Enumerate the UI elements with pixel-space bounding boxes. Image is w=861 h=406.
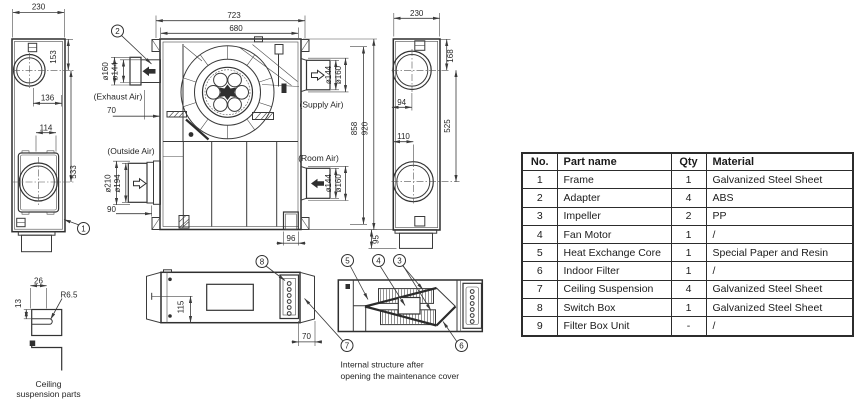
dim-text: 70 — [107, 106, 116, 115]
callout-7: 7 — [305, 299, 354, 352]
dia-text: ø160 — [334, 65, 343, 84]
cell-qty: 4 — [671, 189, 706, 207]
dim-168: 168 — [441, 39, 456, 70]
dim-70-front: 70 — [292, 321, 323, 346]
switch-box-front — [280, 275, 299, 319]
cell-qty: 1 — [671, 171, 706, 189]
dim-95: 95 — [369, 230, 397, 249]
callout-5: 5 — [342, 255, 369, 300]
dim-153: 153 — [49, 39, 73, 70]
cell-part-name: Frame — [557, 171, 671, 189]
hook-caption-line2: suspension parts — [16, 389, 80, 399]
dim-text: 680 — [229, 24, 243, 33]
hook-caption-line1: Ceiling — [36, 379, 62, 389]
indoor-filter-edge — [437, 307, 456, 326]
dim-text: 110 — [397, 132, 410, 141]
dia-text: ø194 — [113, 174, 122, 193]
cell-qty: - — [671, 317, 706, 336]
switch-box-internal — [463, 283, 482, 328]
dim-r6-5: R6.5 — [51, 291, 78, 320]
dia-text: ø210 — [103, 174, 112, 193]
dim-26: 26 — [30, 277, 46, 309]
cell-material: Special Paper and Resin — [706, 244, 853, 262]
screw — [168, 314, 172, 318]
hook-slot — [32, 319, 53, 325]
dim-90-outside: 90 — [107, 205, 152, 217]
dim-136: 136 — [33, 88, 61, 107]
dim-text: 153 — [49, 50, 58, 64]
dim-text: 115 — [177, 300, 186, 313]
cell-material: / — [706, 225, 853, 243]
cell-part-name: Indoor Filter — [557, 262, 671, 280]
callout-number: 7 — [345, 341, 350, 350]
col-header-material: Material — [706, 153, 853, 171]
dia-text: ø144 — [110, 62, 119, 81]
callout-number: 2 — [115, 27, 120, 36]
parts-table: No. Part name Qty Material 1Frame1Galvan… — [521, 152, 854, 337]
table-row: 8Switch Box1Galvanized Steel Sheet — [522, 299, 853, 317]
dim-110: 110 — [393, 132, 413, 161]
dim-text: 230 — [32, 3, 46, 12]
exhaust-air-port: ø160 ø144 (Exhaust Air) 70 — [94, 57, 161, 119]
callout-number: 6 — [459, 341, 464, 350]
internal-structure-view: 5 4 3 6 Internal structure after opening… — [338, 255, 482, 382]
dim-text: R6.5 — [61, 291, 78, 300]
col-header-part-name: Part name — [557, 153, 671, 171]
callout-1: 1 — [64, 220, 90, 235]
table-row: 5Heat Exchange Core1Special Paper and Re… — [522, 244, 853, 262]
cell-no: 1 — [522, 171, 557, 189]
dim-text: 70 — [302, 332, 311, 341]
dim-text: 858 — [350, 121, 359, 135]
hatched-bracket-bottom — [179, 216, 189, 229]
cell-material: / — [706, 317, 853, 336]
right-side-view: 230 168 94 525 110 — [392, 9, 460, 249]
parts-table-header-row: No. Part name Qty Material — [522, 153, 853, 171]
dim-533: 533 — [69, 70, 78, 182]
hatched-bracket-right — [253, 113, 274, 120]
cell-material: Galvanized Steel Sheet — [706, 280, 853, 298]
port-label: (Supply Air) — [300, 99, 344, 109]
room-flow-arrow-icon — [311, 179, 324, 189]
dim-115: 115 — [152, 293, 193, 323]
callout-number: 4 — [376, 256, 381, 265]
dim-525: 525 — [443, 70, 456, 181]
hook-bracket — [30, 341, 62, 371]
motor-brace — [186, 120, 209, 140]
front-view: 115 70 8 7 — [147, 256, 354, 352]
table-row: 3Impeller2PP — [522, 207, 853, 225]
ceiling-hook-detail: 26 13 R6.5 Ceiling suspension parts — [14, 277, 81, 400]
supply-flow-arrow-icon — [312, 70, 325, 80]
dim-text: 26 — [34, 277, 43, 286]
outside-air-port: (Outside Air) ø210 ø194 90 — [103, 146, 160, 217]
internal-caption-line1: Internal structure after — [341, 360, 424, 370]
col-header-no: No. — [522, 153, 557, 171]
dim-text: 95 — [371, 235, 380, 244]
hatched-bracket-left — [167, 112, 187, 118]
dim-text: 920 — [360, 121, 369, 135]
cell-part-name: Adapter — [557, 189, 671, 207]
dim-680: 680 — [161, 24, 299, 38]
technical-drawing-page: 230 153 136 114 533 1 — [0, 0, 861, 406]
cell-qty: 1 — [671, 262, 706, 280]
exhaust-flow-arrow-icon — [143, 67, 156, 77]
dim-text: 13 — [14, 299, 23, 308]
cell-material: PP — [706, 207, 853, 225]
callout-number: 5 — [345, 256, 350, 265]
wall-fitting — [282, 84, 287, 94]
core-compartment — [179, 142, 298, 230]
cell-material: Galvanized Steel Sheet — [706, 299, 853, 317]
dim-width-230-right: 230 — [394, 9, 440, 37]
cell-material: / — [706, 262, 853, 280]
inner-bracket — [275, 45, 283, 55]
dim-text: 230 — [410, 9, 424, 18]
screw — [168, 278, 172, 282]
table-row: 7Ceiling Suspension4Galvanized Steel She… — [522, 280, 853, 298]
dia-text: ø160 — [334, 174, 343, 193]
col-header-qty: Qty — [671, 153, 706, 171]
cell-material: Galvanized Steel Sheet — [706, 171, 853, 189]
cell-no: 9 — [522, 317, 557, 336]
dim-94: 94 — [392, 93, 412, 111]
dim-text: 96 — [287, 234, 296, 243]
cell-no: 7 — [522, 280, 557, 298]
supply-air-port: ø144 ø160 (Supply Air) — [300, 58, 349, 109]
callout-number: 8 — [260, 257, 265, 266]
cell-qty: 4 — [671, 280, 706, 298]
cell-no: 2 — [522, 189, 557, 207]
callout-8: 8 — [256, 256, 285, 281]
dim-96: 96 — [277, 232, 306, 246]
callout-6: 6 — [443, 322, 468, 352]
cell-no: 5 — [522, 244, 557, 262]
hook-body — [32, 310, 62, 336]
dim-text: 90 — [107, 205, 116, 214]
internal-caption-line2: opening the maintenance cover — [341, 371, 460, 381]
cell-part-name: Filter Box Unit — [557, 317, 671, 336]
cell-part-name: Heat Exchange Core — [557, 244, 671, 262]
port-label: (Exhaust Air) — [94, 92, 143, 102]
cell-part-name: Ceiling Suspension — [557, 280, 671, 298]
table-row: 9Filter Box Unit-/ — [522, 317, 853, 336]
cell-qty: 1 — [671, 244, 706, 262]
callout-number: 3 — [397, 256, 402, 265]
port-label: (Outside Air) — [107, 146, 154, 156]
cell-part-name: Impeller — [557, 207, 671, 225]
left-side-view: 230 153 136 114 533 1 — [12, 3, 90, 252]
cell-material: ABS — [706, 189, 853, 207]
outside-flow-arrow-icon — [134, 179, 147, 189]
fan-compartment — [163, 44, 299, 157]
callout-2: 2 — [112, 25, 152, 64]
cell-qty: 2 — [671, 207, 706, 225]
port-label: (Room Air) — [298, 153, 339, 163]
table-row: 2Adapter4ABS — [522, 189, 853, 207]
cell-qty: 1 — [671, 299, 706, 317]
dim-text: 94 — [397, 98, 406, 107]
dim-text: 168 — [446, 49, 455, 63]
callout-number: 1 — [81, 224, 86, 233]
cell-no: 6 — [522, 262, 557, 280]
cell-part-name: Fan Motor — [557, 225, 671, 243]
dim-width-230-left: 230 — [13, 3, 65, 38]
cell-qty: 1 — [671, 225, 706, 243]
dim-114: 114 — [36, 123, 56, 151]
cell-part-name: Switch Box — [557, 299, 671, 317]
dia-text: ø144 — [324, 174, 333, 193]
foot — [22, 235, 52, 252]
hanger-bracket-bottom — [415, 217, 425, 227]
dim-text: 723 — [227, 11, 241, 20]
maintenance-cover — [207, 284, 254, 310]
dim-text: 533 — [69, 165, 78, 179]
impeller — [203, 67, 253, 117]
dia-text: ø144 — [324, 65, 333, 84]
room-air-port: (Room Air) ø144 ø160 — [298, 153, 348, 201]
cell-no: 3 — [522, 207, 557, 225]
foot — [400, 233, 433, 248]
table-row: 4Fan Motor1/ — [522, 225, 853, 243]
dim-13: 13 — [14, 299, 32, 319]
dia-text: ø160 — [101, 62, 110, 81]
dim-text: 136 — [41, 94, 55, 103]
table-row: 6Indoor Filter1/ — [522, 262, 853, 280]
table-row: 1Frame1Galvanized Steel Sheet — [522, 171, 853, 189]
dim-text: 525 — [443, 119, 452, 133]
cell-no: 4 — [522, 225, 557, 243]
cell-no: 8 — [522, 299, 557, 317]
dim-text: 114 — [40, 123, 53, 132]
plan-view: ø160 ø144 (Exhaust Air) 70 (Outside Air)… — [94, 11, 397, 248]
